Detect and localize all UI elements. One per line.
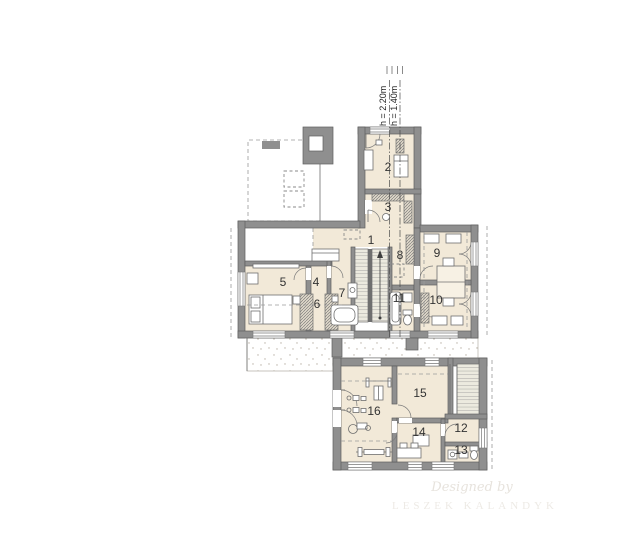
room-label-5: 5 xyxy=(280,275,287,289)
sink-cabinet xyxy=(348,283,357,298)
bed xyxy=(394,155,408,177)
watermark: Designed by LESZEK KALANDYK xyxy=(392,480,558,512)
room-label-15: 15 xyxy=(413,386,427,400)
sink xyxy=(383,214,390,221)
wardrobe xyxy=(421,293,429,323)
upper-staircase xyxy=(355,249,388,322)
chair xyxy=(443,258,454,266)
floor-plan-page: h = 2.20m h = 1.40m 1 2 3 4 5 6 7 8 9 10… xyxy=(0,0,638,556)
sofa xyxy=(312,249,339,261)
room-label-6: 6 xyxy=(314,297,321,311)
room-label-8: 8 xyxy=(397,248,404,262)
pillow xyxy=(251,311,260,322)
toilet-tank xyxy=(403,310,412,315)
bed xyxy=(424,234,439,243)
room-label-14: 14 xyxy=(412,425,426,439)
shelf xyxy=(253,264,299,268)
toilet xyxy=(332,296,338,302)
wardrobe xyxy=(406,235,414,264)
watermark-designer-name: LESZEK KALANDYK xyxy=(392,500,558,512)
floor-plan-svg: h = 2.20m h = 1.40m 1 2 3 4 5 6 7 8 9 10… xyxy=(0,0,638,556)
height-label-220: h = 2.20m xyxy=(378,86,388,126)
room-label-16: 16 xyxy=(367,404,381,418)
room-label-7: 7 xyxy=(339,286,346,300)
room-label-3: 3 xyxy=(385,200,392,214)
room-label-10: 10 xyxy=(429,293,443,307)
room-label-13: 13 xyxy=(454,443,468,457)
room-label-12: 12 xyxy=(454,421,468,435)
bed xyxy=(432,316,447,325)
skylight-dashed xyxy=(284,191,304,207)
height-label-140: h = 1.40m xyxy=(389,86,399,126)
watermark-designed-by: Designed by xyxy=(430,480,513,495)
section-tick-marks xyxy=(387,66,403,74)
chair xyxy=(411,443,418,448)
toilet xyxy=(404,315,412,325)
armchair xyxy=(247,273,258,284)
desk xyxy=(364,150,373,170)
bed xyxy=(446,234,461,243)
room-label-11: 11 xyxy=(393,291,406,305)
chair xyxy=(400,443,407,448)
upper-floor xyxy=(231,127,487,357)
skylight-dashed xyxy=(284,171,304,187)
wardrobe xyxy=(300,294,313,330)
room-label-9: 9 xyxy=(434,246,441,260)
chair xyxy=(443,298,454,306)
radiator xyxy=(404,201,412,223)
toilet xyxy=(471,451,478,460)
desk xyxy=(397,448,421,458)
chimney-small xyxy=(262,141,280,149)
lower-floor xyxy=(333,358,492,472)
bed xyxy=(451,316,463,325)
room-label-2: 2 xyxy=(385,160,392,174)
room-label-1: 1 xyxy=(368,233,375,247)
pillow xyxy=(251,297,260,308)
room-label-4: 4 xyxy=(313,275,320,289)
